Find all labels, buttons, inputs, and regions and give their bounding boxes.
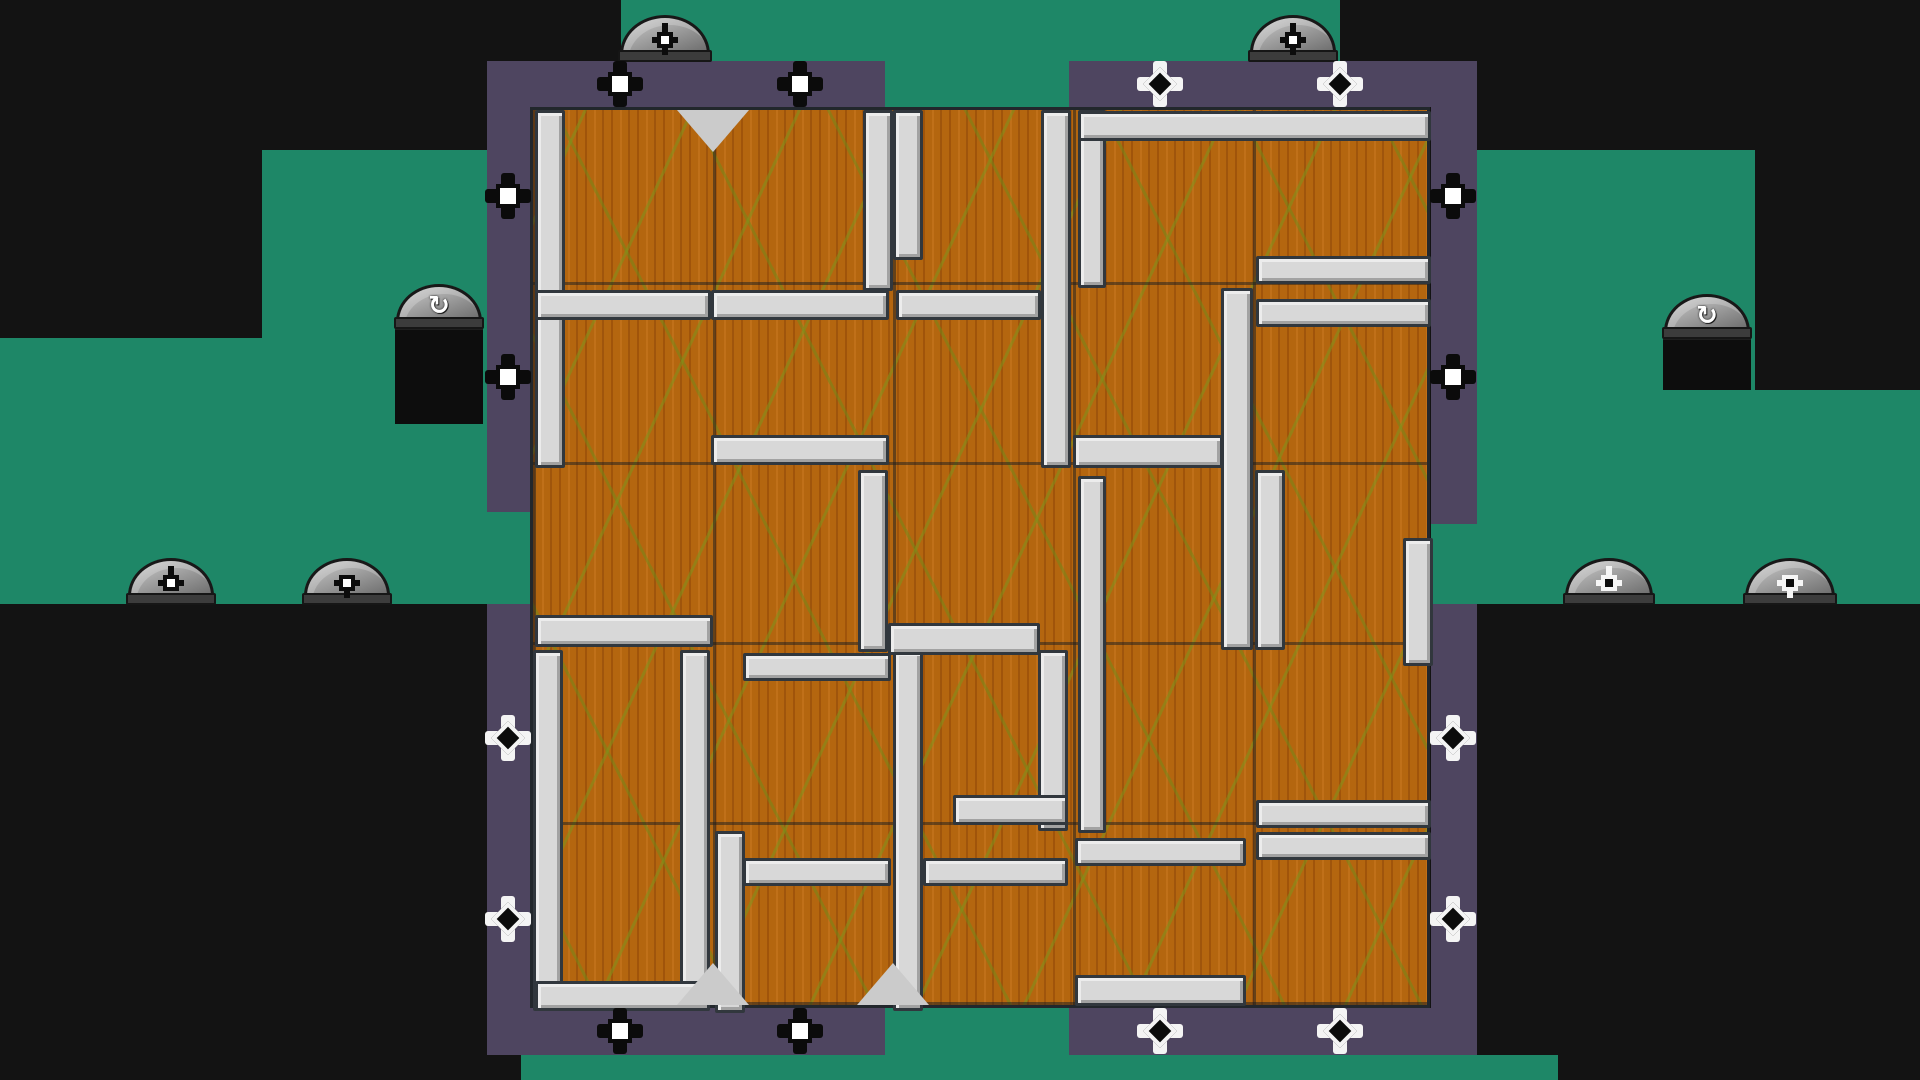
connector-node-bottom-3 bbox=[1137, 1008, 1183, 1054]
frame-top-left-bar bbox=[487, 61, 885, 107]
node-core bbox=[1323, 1014, 1357, 1048]
terrain-teal-frame-gap-right bbox=[1431, 524, 1477, 604]
pin-stub bbox=[1300, 37, 1306, 43]
pin-stub bbox=[178, 580, 184, 586]
connector-node-right-2 bbox=[1430, 354, 1476, 400]
maze-wall-bar bbox=[1075, 838, 1246, 866]
pin-stub bbox=[1616, 580, 1622, 586]
maze-wall-bar bbox=[896, 290, 1041, 320]
terrain-teal-top-strip bbox=[621, 0, 1340, 61]
pin-stub bbox=[1280, 37, 1286, 43]
maze-edge-notch bbox=[857, 963, 929, 1005]
frame-right-column-upper bbox=[1431, 61, 1477, 524]
node-core bbox=[1436, 721, 1470, 755]
node-core bbox=[1441, 365, 1465, 389]
terrain-teal-top-gap bbox=[885, 61, 1069, 107]
node-pin-icon bbox=[336, 566, 358, 598]
frame-top-right-bar bbox=[1069, 61, 1477, 107]
node-core bbox=[496, 365, 520, 389]
connector-node-right-4 bbox=[1430, 896, 1476, 942]
pin-core bbox=[1601, 575, 1617, 591]
maze-wall-bar bbox=[1403, 538, 1433, 666]
maze-wall-bar bbox=[1256, 800, 1431, 828]
maze-wall-bar bbox=[680, 650, 710, 1011]
terrain-teal-left-band bbox=[0, 338, 262, 604]
pin-core bbox=[163, 575, 179, 591]
pin-core bbox=[657, 32, 673, 48]
maze-wall-bar bbox=[1075, 975, 1246, 1006]
node-core bbox=[1143, 67, 1177, 101]
pin-stub bbox=[158, 580, 164, 586]
maze-wall-bar bbox=[1078, 476, 1106, 833]
connector-node-bottom-4 bbox=[1317, 1008, 1363, 1054]
maze-wall-bar bbox=[1073, 435, 1223, 468]
maze-wall-bar bbox=[535, 110, 565, 468]
node-core bbox=[788, 72, 812, 96]
maze-wall-bar bbox=[1221, 288, 1253, 650]
connector-node-top-2 bbox=[777, 61, 823, 107]
node-core bbox=[1441, 184, 1465, 208]
platform-block-right bbox=[1663, 338, 1751, 390]
maze-wall-bar bbox=[711, 435, 889, 465]
node-core bbox=[491, 721, 525, 755]
maze-wall-bar bbox=[743, 653, 891, 681]
maze-wall-bar bbox=[1256, 299, 1431, 327]
rotate-cw-icon: ↻ bbox=[1696, 303, 1718, 329]
connector-node-top-1 bbox=[597, 61, 643, 107]
maze-wall-bar bbox=[1256, 256, 1431, 284]
maze-wall-bar bbox=[953, 795, 1068, 825]
connector-node-left-2 bbox=[485, 354, 531, 400]
connector-node-left-3 bbox=[485, 715, 531, 761]
terrain-teal-frame-gap-left bbox=[487, 512, 530, 604]
pin-stub bbox=[1797, 580, 1803, 586]
node-pin-icon bbox=[160, 566, 182, 598]
rotate-cw-icon: ↻ bbox=[428, 293, 450, 319]
node-core bbox=[608, 72, 632, 96]
maze-wall-bar bbox=[1078, 111, 1431, 141]
node-core bbox=[608, 1019, 632, 1043]
pin-core bbox=[339, 575, 355, 591]
maze-wall-bar bbox=[535, 615, 713, 647]
puzzle-board bbox=[530, 107, 1430, 1008]
connector-node-bottom-2 bbox=[777, 1008, 823, 1054]
frame-left-column-upper bbox=[487, 61, 530, 512]
maze-wall-bar bbox=[711, 290, 889, 320]
connector-node-left-4 bbox=[485, 896, 531, 942]
node-pin-icon bbox=[654, 23, 676, 55]
maze-edge-notch bbox=[677, 110, 749, 152]
pin-stub bbox=[334, 580, 340, 586]
pin-stub bbox=[1777, 580, 1783, 586]
frame-right-column-lower bbox=[1431, 604, 1477, 1055]
connector-node-right-3 bbox=[1430, 715, 1476, 761]
pin-stub bbox=[354, 580, 360, 586]
maze-wall-bar bbox=[893, 650, 923, 1011]
maze-wall-bar bbox=[1255, 470, 1285, 650]
maze-wall-bar bbox=[535, 290, 711, 320]
pin-stub bbox=[1596, 580, 1602, 586]
maze-wall-bar bbox=[888, 623, 1040, 655]
maze-wall-bar bbox=[743, 858, 891, 886]
maze-wall-bar bbox=[1256, 832, 1431, 860]
connector-node-bottom-1 bbox=[597, 1008, 643, 1054]
maze-edge-notch bbox=[677, 963, 749, 1005]
node-core bbox=[788, 1019, 812, 1043]
node-core bbox=[1323, 67, 1357, 101]
pin-stub bbox=[672, 37, 678, 43]
frame-left-column-lower bbox=[487, 604, 530, 1055]
node-core bbox=[1143, 1014, 1177, 1048]
connector-node-left-1 bbox=[485, 173, 531, 219]
terrain-teal-bottom-strip bbox=[521, 1055, 1558, 1080]
maze-wall-bar bbox=[893, 110, 923, 260]
platform-block-left bbox=[395, 328, 483, 424]
node-core bbox=[491, 902, 525, 936]
maze-wall-bar bbox=[533, 650, 563, 1011]
pin-core bbox=[1782, 575, 1798, 591]
connector-node-top-4 bbox=[1317, 61, 1363, 107]
pin-core bbox=[1285, 32, 1301, 48]
frame-bottom-right-bar bbox=[1069, 1008, 1477, 1055]
frame-bottom-left-bar bbox=[487, 1008, 885, 1055]
node-pin-icon bbox=[1282, 23, 1304, 55]
node-pin-icon bbox=[1779, 566, 1801, 598]
maze-wall-bar bbox=[923, 858, 1068, 886]
maze-wall-bar bbox=[863, 110, 893, 291]
game-scene: ↻↻ bbox=[0, 0, 1920, 1080]
pin-stub bbox=[652, 37, 658, 43]
node-pin-icon bbox=[1598, 566, 1620, 598]
maze-wall-bar bbox=[858, 470, 888, 652]
connector-node-top-3 bbox=[1137, 61, 1183, 107]
connector-node-right-1 bbox=[1430, 173, 1476, 219]
maze-wall-bar bbox=[1041, 110, 1071, 468]
node-core bbox=[496, 184, 520, 208]
node-core bbox=[1436, 902, 1470, 936]
